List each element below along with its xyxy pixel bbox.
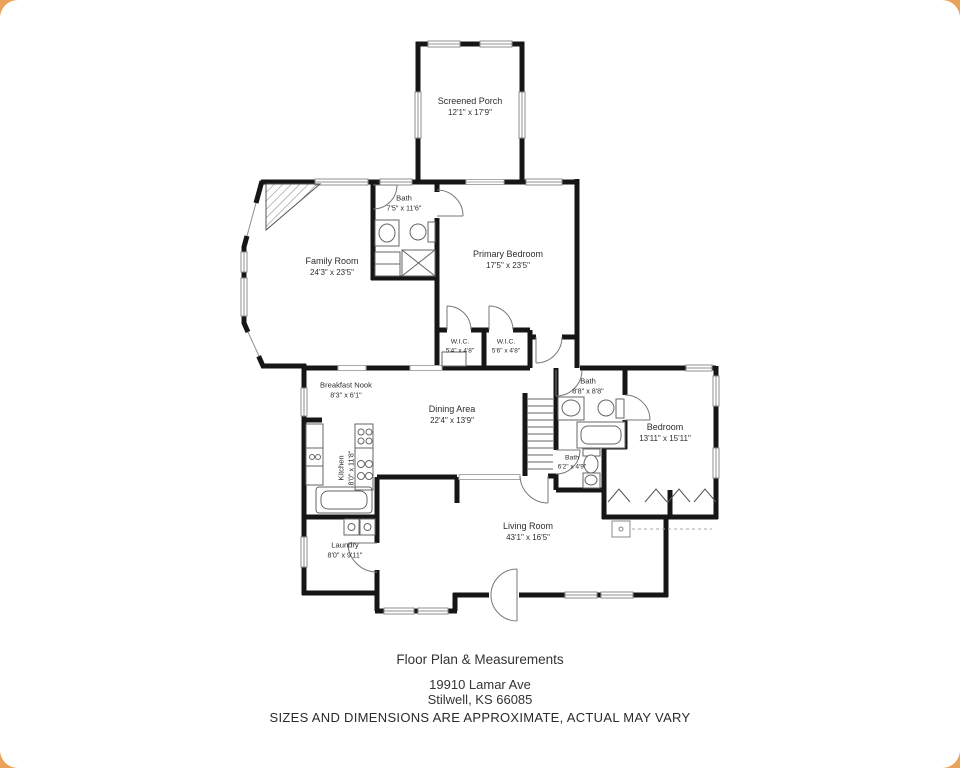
room-dims: 12'1" x 17'9" [438, 108, 503, 118]
room-name: W.I.C. [446, 338, 474, 347]
footer-address-line2: Stilwell, KS 66085 [0, 692, 960, 707]
room-name: Breakfast Nook [320, 380, 372, 390]
room-dims: 7'5" x 11'6" [387, 203, 422, 212]
room-name: Dining Area [429, 404, 476, 416]
room-name: Family Room [305, 256, 358, 268]
room-name: Bath [558, 454, 586, 463]
room-dims: 5'6" x 4'8" [492, 347, 520, 355]
floor-plan-card: Screened Porch 12'1" x 17'9" Family Room… [0, 0, 960, 768]
footer-address-line1: 19910 Lamar Ave [0, 677, 960, 692]
room-label-dining-area: Dining Area 22'4" x 13'9" [429, 404, 476, 426]
room-dims: 8'3" x 6'1" [320, 390, 372, 399]
footer-disclaimer: SIZES AND DIMENSIONS ARE APPROXIMATE, AC… [0, 710, 960, 725]
room-label-wic-right: W.I.C. 5'6" x 4'8" [492, 338, 520, 355]
room-name: Laundry [328, 540, 363, 550]
room-dims: 8'0" x 11'8" [346, 451, 355, 486]
room-label-breakfast-nook: Breakfast Nook 8'3" x 6'1" [320, 380, 372, 399]
room-name: Bath [387, 193, 422, 203]
room-dims: 8'8" x 8'8" [572, 386, 603, 395]
room-label-wic-left: W.I.C. 5'4" x 4'8" [446, 338, 474, 355]
room-dims: 5'4" x 4'8" [446, 347, 474, 355]
room-label-living-room: Living Room 43'1" x 16'5" [503, 521, 553, 543]
stairs [527, 399, 553, 469]
room-dims: 24'3" x 23'5" [305, 268, 358, 278]
room-label-bath-primary: Bath 7'5" x 11'6" [387, 193, 422, 212]
fireplace-hatch [266, 184, 320, 230]
room-dims: 8'0" x 9'11" [328, 550, 363, 559]
room-name: Living Room [503, 521, 553, 533]
room-label-laundry: Laundry 8'0" x 9'11" [328, 540, 363, 559]
page: { "plan": { "rooms": [ {"id":"screened-p… [0, 0, 960, 768]
room-name: Screened Porch [438, 96, 503, 108]
room-label-screened-porch: Screened Porch 12'1" x 17'9" [438, 96, 503, 118]
room-label-family-room: Family Room 24'3" x 23'5" [305, 256, 358, 278]
room-label-bath-hall: Bath 8'8" x 8'8" [572, 376, 603, 395]
room-name: W.I.C. [492, 338, 520, 347]
footer-title: Floor Plan & Measurements [0, 652, 960, 667]
room-name: Kitchen [336, 451, 346, 486]
room-name: Bedroom [639, 422, 691, 434]
room-label-kitchen: Kitchen 8'0" x 11'8" [336, 451, 355, 486]
laundry-fixtures [344, 519, 375, 535]
room-name: Bath [572, 376, 603, 386]
room-dims: 22'4" x 13'9" [429, 416, 476, 426]
room-dims: 6'2" x 4'9" [558, 463, 586, 471]
closet-chevrons [608, 489, 716, 502]
utility-box [612, 521, 712, 537]
room-label-primary-bedroom: Primary Bedroom 17'5" x 23'5" [473, 249, 543, 271]
room-label-bath-half: Bath 6'2" x 4'9" [558, 454, 586, 471]
room-label-bedroom: Bedroom 13'11" x 15'11" [639, 422, 691, 444]
room-dims: 13'11" x 15'11" [639, 434, 691, 444]
room-dims: 43'1" x 16'5" [503, 533, 553, 543]
room-name: Primary Bedroom [473, 249, 543, 261]
room-dims: 17'5" x 23'5" [473, 261, 543, 271]
